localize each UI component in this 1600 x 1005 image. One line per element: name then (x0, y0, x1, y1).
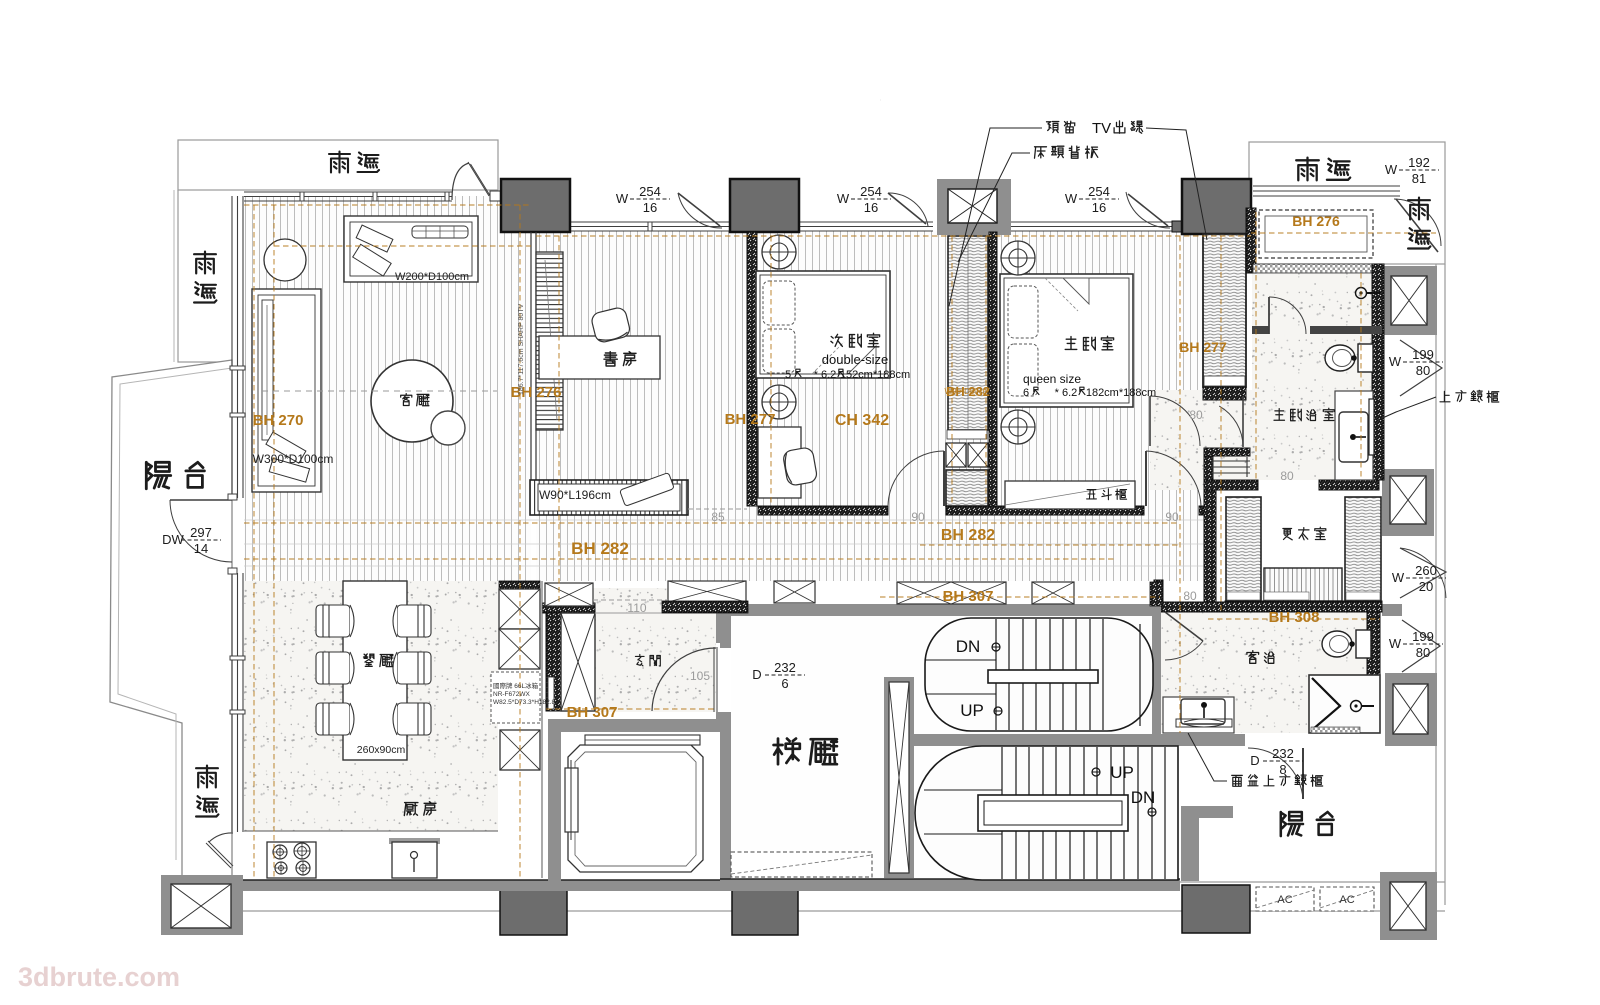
svg-text:* 6.2: * 6.2 (814, 369, 837, 381)
svg-text:20: 20 (1419, 579, 1433, 594)
svg-text:152cm*188cm: 152cm*188cm (840, 369, 910, 381)
svg-text:BH 276: BH 276 (1292, 213, 1340, 229)
svg-text:BH 307: BH 307 (943, 588, 994, 605)
svg-text:110: 110 (627, 601, 646, 615)
svg-text:W90*L196cm: W90*L196cm (539, 488, 611, 502)
svg-text:BH 307: BH 307 (567, 704, 618, 721)
svg-text:199: 199 (1412, 347, 1434, 362)
svg-text:W: W (1389, 354, 1402, 369)
svg-text:UP: UP (960, 701, 984, 720)
svg-text:186.7*117.6cm SHARP 80TV: 186.7*117.6cm SHARP 80TV (518, 303, 525, 395)
svg-text:queen size: queen size (1023, 372, 1081, 386)
svg-text:90: 90 (911, 510, 925, 524)
svg-text:80: 80 (1189, 408, 1203, 422)
svg-text:BH 308: BH 308 (1269, 609, 1320, 626)
svg-text:80: 80 (1280, 469, 1294, 483)
svg-text:AC: AC (1339, 894, 1354, 906)
svg-text:BH 270: BH 270 (253, 412, 304, 429)
svg-text:81: 81 (1412, 171, 1426, 186)
svg-text:D: D (1250, 753, 1259, 768)
svg-text:232: 232 (774, 660, 796, 675)
svg-text:CH 342: CH 342 (835, 412, 889, 429)
svg-text:260x90cm: 260x90cm (357, 744, 406, 756)
svg-text:BH 277: BH 277 (725, 411, 776, 428)
svg-text:6: 6 (1023, 387, 1029, 399)
svg-text:TV: TV (1092, 120, 1111, 137)
svg-text:80: 80 (1416, 645, 1430, 660)
svg-text:80: 80 (1416, 363, 1430, 378)
svg-text:BH 277: BH 277 (1179, 339, 1227, 355)
svg-text:14: 14 (194, 541, 208, 556)
svg-text:16: 16 (864, 200, 878, 215)
svg-text:W: W (1389, 636, 1402, 651)
svg-text:254: 254 (639, 184, 661, 199)
svg-text:BH 282: BH 282 (571, 539, 629, 558)
svg-text:W: W (1392, 570, 1405, 585)
svg-text:NR-F672WX: NR-F672WX (493, 691, 531, 698)
svg-text:AC: AC (1277, 894, 1292, 906)
svg-text:W300*D100cm: W300*D100cm (253, 452, 334, 466)
svg-text:105: 105 (690, 669, 710, 683)
svg-text:國際牌 66L冰箱: 國際牌 66L冰箱 (493, 681, 539, 690)
svg-text:3dbrute.com: 3dbrute.com (18, 962, 180, 992)
svg-text:260: 260 (1415, 563, 1437, 578)
svg-text:W: W (1385, 162, 1398, 177)
svg-text:W: W (1065, 191, 1078, 206)
svg-text:* 6.2: * 6.2 (1055, 387, 1078, 399)
svg-text:BH 282: BH 282 (941, 527, 995, 544)
svg-text:double-size: double-size (822, 352, 889, 367)
svg-text:182cm*188cm: 182cm*188cm (1086, 387, 1156, 399)
svg-text:16: 16 (1092, 200, 1106, 215)
svg-text:85: 85 (711, 510, 725, 524)
svg-text:254: 254 (1088, 184, 1110, 199)
svg-text:232: 232 (1272, 746, 1294, 761)
svg-text:UP: UP (1110, 763, 1134, 782)
svg-text:199: 199 (1412, 629, 1434, 644)
svg-text:5: 5 (785, 369, 791, 381)
svg-text:90: 90 (1165, 510, 1179, 524)
svg-text:DN: DN (1131, 788, 1156, 807)
svg-text:192: 192 (1408, 155, 1430, 170)
svg-text:W: W (837, 191, 850, 206)
svg-text:BH 282: BH 282 (946, 384, 990, 399)
svg-text:W200*D100cm: W200*D100cm (395, 271, 469, 283)
svg-text:6: 6 (781, 676, 788, 691)
svg-text:254: 254 (860, 184, 882, 199)
svg-text:80: 80 (1183, 589, 1197, 603)
svg-text:D: D (752, 667, 761, 682)
svg-text:16: 16 (643, 200, 657, 215)
svg-text:W: W (616, 191, 629, 206)
svg-text:297: 297 (190, 525, 212, 540)
svg-text:DN: DN (956, 637, 981, 656)
svg-text:W82.5*D73.3*H182.8: W82.5*D73.3*H182.8 (493, 699, 556, 706)
